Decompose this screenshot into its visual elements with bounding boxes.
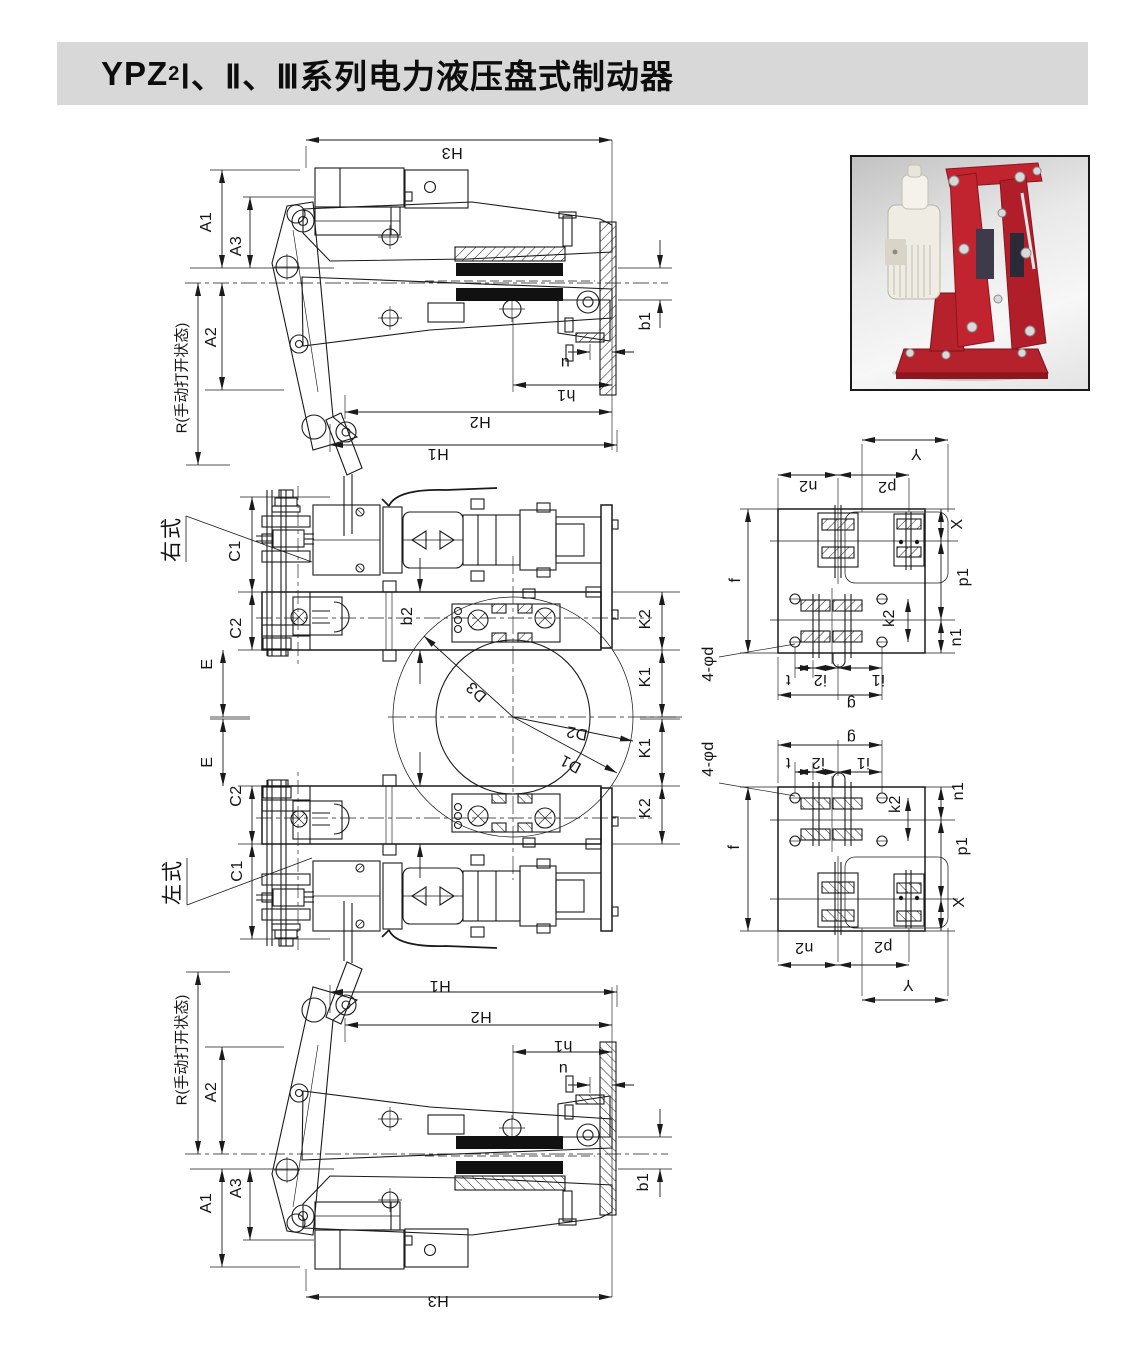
product-photo — [850, 155, 1090, 391]
brake-photo-illustration — [852, 157, 1088, 389]
brake-disc-circles — [388, 556, 682, 880]
catalog-page: YPZ2Ⅰ、Ⅱ、Ⅲ系列电力液压盘式制动器 — [0, 0, 1145, 1355]
type-label-leaders — [186, 516, 312, 905]
